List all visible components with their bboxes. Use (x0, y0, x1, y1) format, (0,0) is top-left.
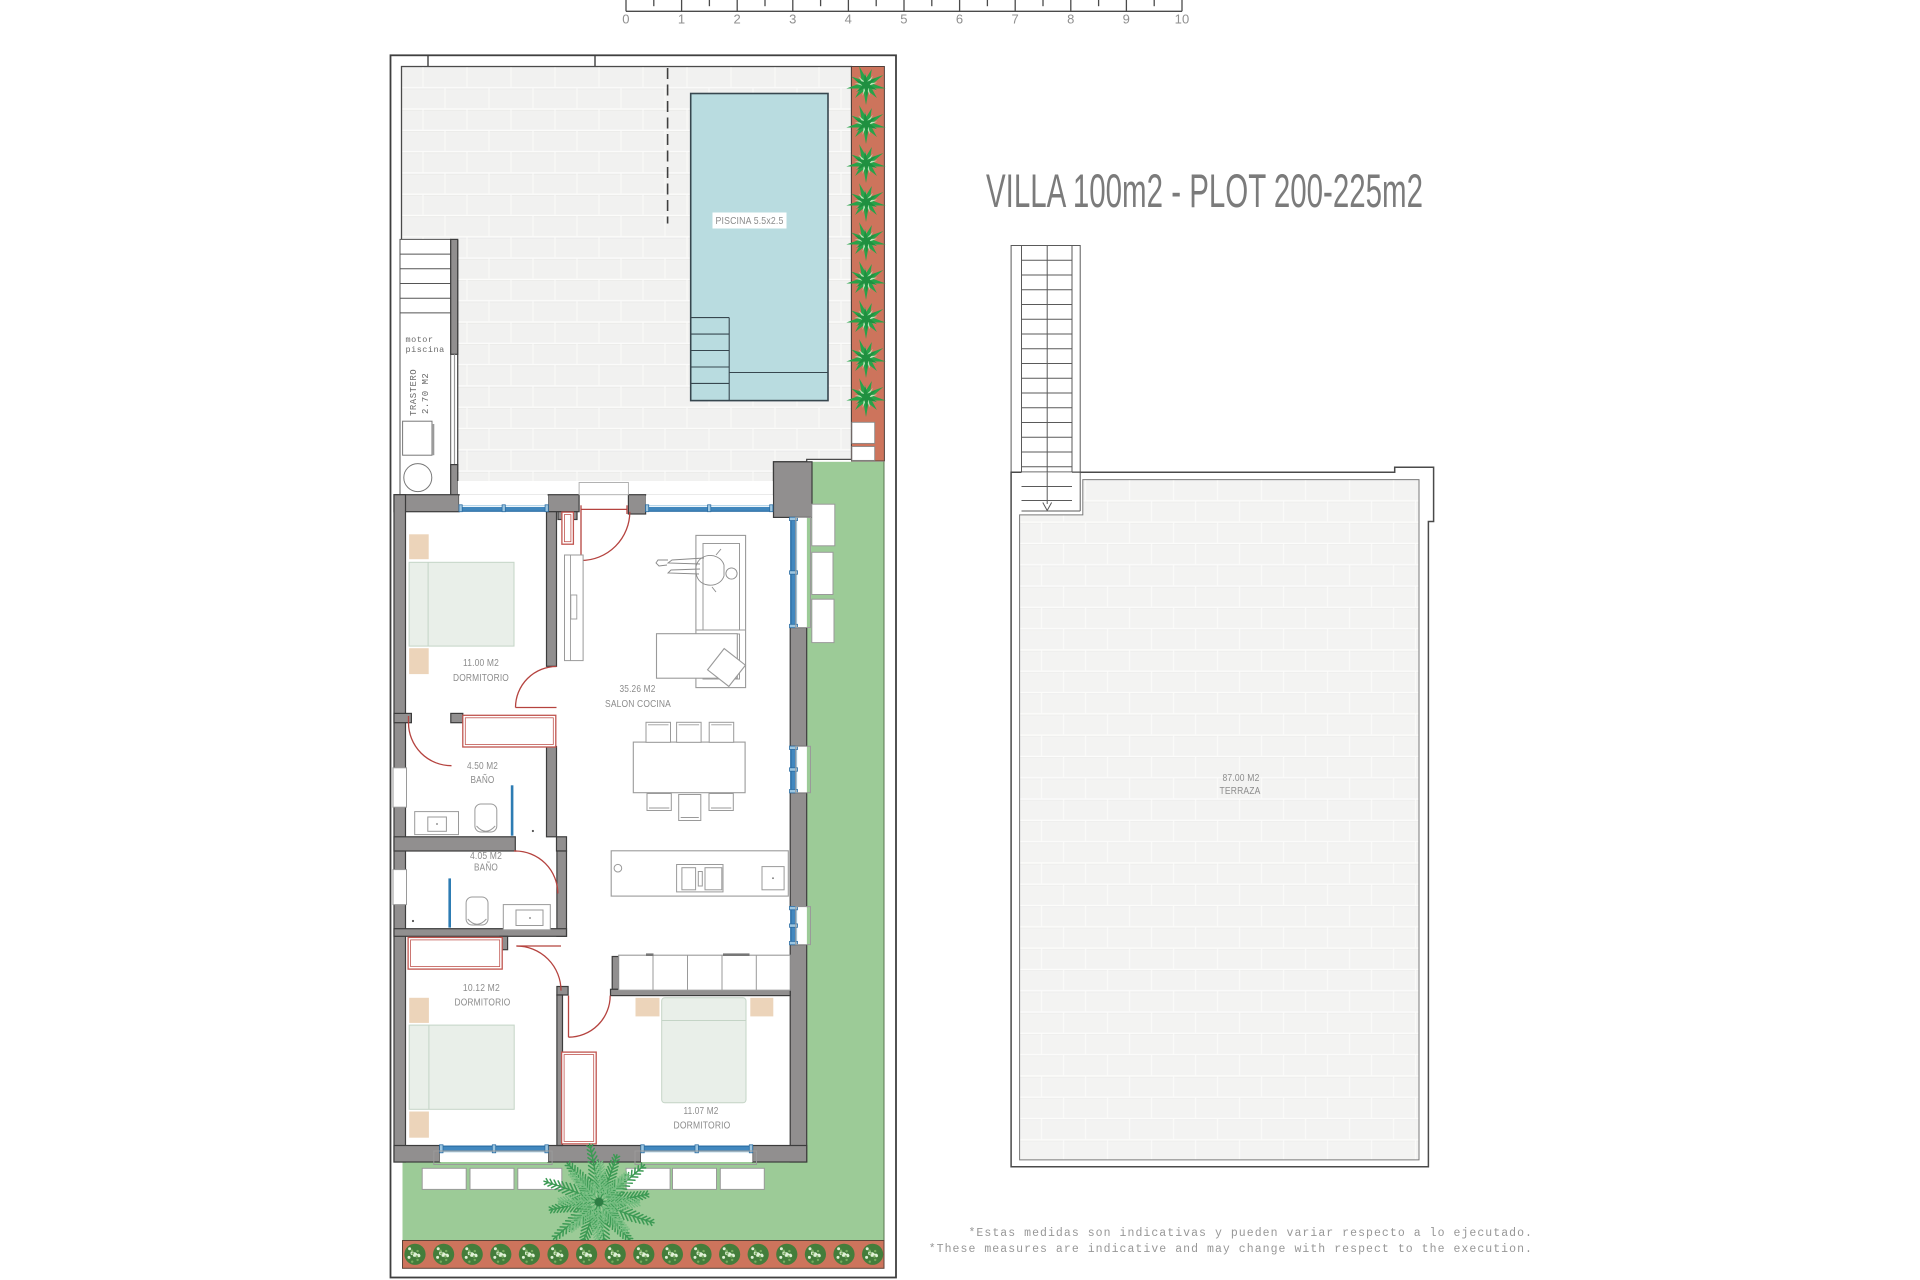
svg-text:3: 3 (789, 12, 796, 27)
svg-text:5: 5 (900, 12, 907, 27)
svg-text:4.05 M2: 4.05 M2 (470, 850, 502, 862)
svg-text:BAÑO: BAÑO (474, 861, 498, 874)
svg-text:6: 6 (956, 12, 963, 27)
svg-text:11.07 M2: 11.07 M2 (684, 1105, 719, 1117)
svg-text:DORMITORIO: DORMITORIO (455, 997, 511, 1009)
svg-text:10: 10 (1175, 12, 1190, 27)
svg-text:7: 7 (1011, 12, 1018, 27)
svg-text:4.50 M2: 4.50 M2 (467, 760, 498, 772)
svg-text:0: 0 (622, 12, 629, 27)
svg-text:TERRAZA: TERRAZA (1220, 785, 1261, 797)
svg-text:87.00 M2: 87.00 M2 (1223, 772, 1260, 784)
svg-text:1: 1 (678, 12, 685, 27)
svg-text:2: 2 (733, 12, 740, 27)
svg-text:8: 8 (1067, 12, 1074, 27)
svg-text:10.12 M2: 10.12 M2 (463, 982, 500, 994)
svg-text:DORMITORIO: DORMITORIO (453, 672, 509, 684)
svg-text:35.26 M2: 35.26 M2 (620, 683, 656, 695)
svg-text:DORMITORIO: DORMITORIO (674, 1120, 731, 1132)
svg-text:9: 9 (1123, 12, 1130, 27)
svg-text:VILLA 100m2 - PLOT 200-225m2: VILLA 100m2 - PLOT 200-225m2 (986, 164, 1423, 217)
svg-text:11.00 M2: 11.00 M2 (463, 657, 499, 669)
svg-text:TRASTERO: TRASTERO (409, 369, 419, 416)
svg-text:PISCINA 5.5x2.5: PISCINA 5.5x2.5 (716, 215, 784, 227)
svg-text:*These measures are indicative: *These measures are indicative and may c… (929, 1243, 1533, 1256)
svg-text:BAÑO: BAÑO (471, 773, 495, 786)
svg-text:SALON COCINA: SALON COCINA (605, 698, 671, 710)
svg-text:*Estas medidas son indicativas: *Estas medidas son indicativas y pueden … (968, 1227, 1533, 1240)
svg-text:motor: motor (406, 335, 434, 345)
svg-text:4: 4 (845, 12, 852, 27)
svg-text:piscina: piscina (406, 345, 445, 355)
svg-text:2.70 M2: 2.70 M2 (421, 373, 431, 414)
